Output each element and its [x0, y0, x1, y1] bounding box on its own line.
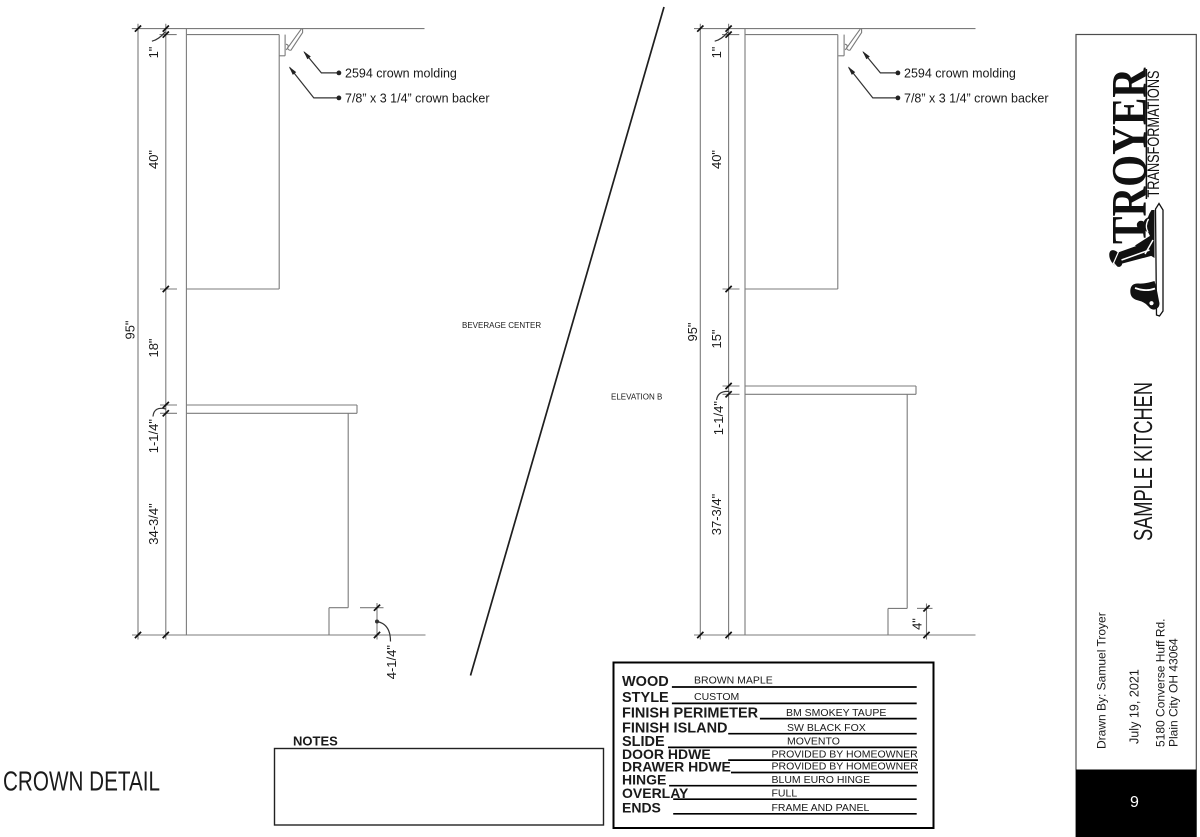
svg-text:PROVIDED BY HOMEOWNER: PROVIDED BY HOMEOWNER	[772, 748, 919, 760]
svg-text:FULL: FULL	[772, 787, 798, 799]
svg-text:18": 18"	[146, 338, 161, 357]
svg-text:15": 15"	[709, 329, 724, 348]
svg-text:STYLE: STYLE	[622, 690, 669, 706]
svg-text:FINISH PERIMETER: FINISH PERIMETER	[622, 705, 759, 721]
svg-text:2594 crown molding: 2594 crown molding	[904, 66, 1016, 80]
svg-text:95": 95"	[685, 322, 700, 341]
svg-text:1": 1"	[146, 46, 161, 58]
svg-text:BROWN MAPLE: BROWN MAPLE	[694, 675, 773, 687]
svg-text:BM SMOKEY TAUPE: BM SMOKEY TAUPE	[786, 707, 886, 719]
svg-text:7/8” x 3 1/4” crown backer: 7/8” x 3 1/4” crown backer	[904, 91, 1049, 105]
svg-text:BLUM EURO HINGE: BLUM EURO HINGE	[772, 774, 871, 786]
svg-text:1-1/4": 1-1/4"	[711, 401, 726, 436]
svg-text:40": 40"	[709, 150, 724, 169]
svg-text:1-1/4": 1-1/4"	[146, 419, 161, 454]
svg-text:37-3/4": 37-3/4"	[709, 493, 724, 535]
svg-text:SW BLACK FOX: SW BLACK FOX	[787, 722, 866, 734]
svg-text:5180 Converse Huff Rd.: 5180 Converse Huff Rd.	[1154, 618, 1168, 747]
svg-text:July 19, 2021: July 19, 2021	[1128, 669, 1142, 744]
svg-text:7/8” x 3 1/4” crown backer: 7/8” x 3 1/4” crown backer	[345, 91, 490, 105]
svg-text:1": 1"	[709, 46, 724, 58]
svg-text:MOVENTO: MOVENTO	[787, 736, 840, 748]
svg-text:SAMPLE KITCHEN: SAMPLE KITCHEN	[1128, 382, 1158, 541]
svg-text:2594 crown molding: 2594 crown molding	[345, 66, 457, 80]
svg-text:Plain City OH 43064: Plain City OH 43064	[1167, 638, 1181, 747]
svg-text:9: 9	[1130, 794, 1139, 811]
svg-text:CUSTOM: CUSTOM	[694, 691, 739, 703]
svg-text:ENDS: ENDS	[622, 800, 661, 816]
svg-text:TRANSFORMATIONS: TRANSFORMATIONS	[1145, 71, 1163, 198]
svg-text:NOTES: NOTES	[293, 734, 338, 749]
svg-text:BEVERAGE CENTER: BEVERAGE CENTER	[462, 321, 541, 330]
svg-text:WOOD: WOOD	[622, 674, 669, 690]
svg-text:4": 4"	[910, 618, 925, 630]
svg-text:40": 40"	[146, 150, 161, 169]
svg-text:FRAME AND PANEL: FRAME AND PANEL	[772, 802, 870, 814]
svg-text:34-3/4": 34-3/4"	[146, 503, 161, 545]
svg-text:Drawn By: Samuel Troyer: Drawn By: Samuel Troyer	[1095, 612, 1109, 749]
svg-text:CROWN DETAIL: CROWN DETAIL	[3, 766, 160, 797]
svg-text:ELEVATION B: ELEVATION B	[611, 393, 662, 402]
svg-text:95": 95"	[123, 320, 138, 339]
svg-text:PROVIDED BY HOMEOWNER: PROVIDED BY HOMEOWNER	[772, 761, 919, 773]
svg-text:4-1/4": 4-1/4"	[384, 645, 399, 680]
